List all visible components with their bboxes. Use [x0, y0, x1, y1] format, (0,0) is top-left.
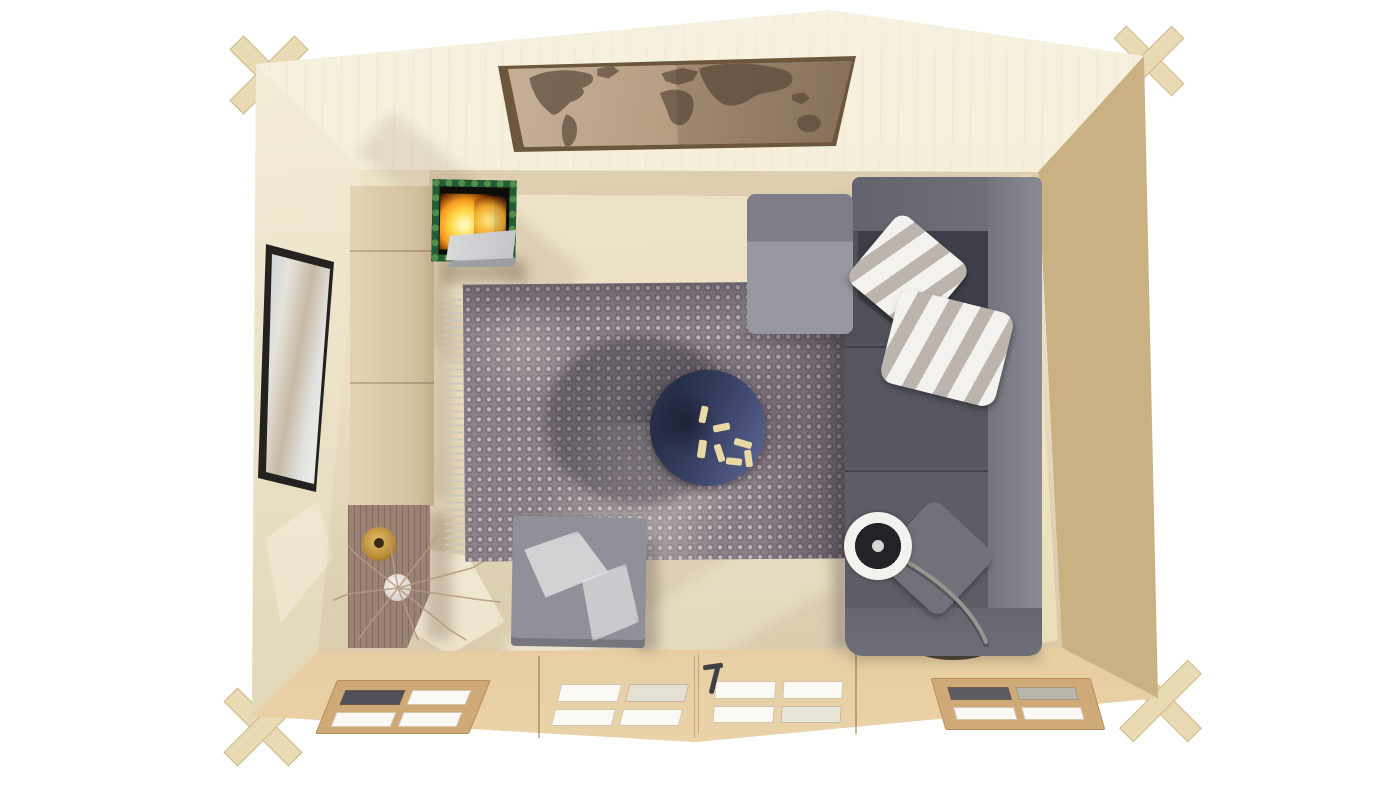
cabinet-seam	[350, 250, 434, 252]
door-pane	[618, 709, 683, 727]
sofa-seat-seam	[845, 470, 990, 472]
window-left	[331, 690, 472, 727]
sofa-chaise	[747, 194, 853, 334]
ottoman	[511, 516, 647, 648]
world-map-art	[502, 57, 856, 149]
cabinet-seam	[350, 382, 434, 384]
door-right-panes	[713, 681, 844, 723]
wall-sunlight-patch	[258, 500, 333, 630]
door-pane	[551, 709, 616, 727]
game-piece	[733, 438, 752, 450]
window-pane	[1021, 707, 1085, 720]
table-top-shadow	[656, 388, 718, 458]
window-pane	[947, 687, 1011, 700]
door-pane	[714, 681, 776, 699]
game-piece	[697, 440, 707, 459]
window-pane	[953, 707, 1017, 720]
door-pane	[713, 706, 775, 724]
door-pane	[782, 681, 844, 699]
door-left-panes	[551, 684, 689, 726]
lamp-shade	[844, 512, 912, 580]
window-pane	[331, 712, 397, 727]
door-pane	[557, 684, 622, 702]
window-pane	[397, 712, 463, 727]
door-pane	[624, 684, 689, 702]
cabin-top-down-render	[0, 0, 1400, 788]
tall-cabinet	[350, 186, 434, 506]
window-pane	[1015, 687, 1079, 700]
world-map-continents	[501, 53, 857, 152]
window-pane	[339, 690, 405, 705]
sofa-arm-bottom	[845, 608, 1042, 656]
coffee-table	[650, 370, 766, 486]
window-right	[947, 687, 1084, 720]
game-piece	[726, 457, 743, 466]
rug-fringe	[443, 293, 464, 553]
window-pane	[406, 690, 472, 705]
sofa-back-right	[988, 177, 1042, 655]
game-piece	[744, 450, 753, 468]
door-pane	[780, 706, 842, 724]
game-piece	[713, 443, 725, 462]
